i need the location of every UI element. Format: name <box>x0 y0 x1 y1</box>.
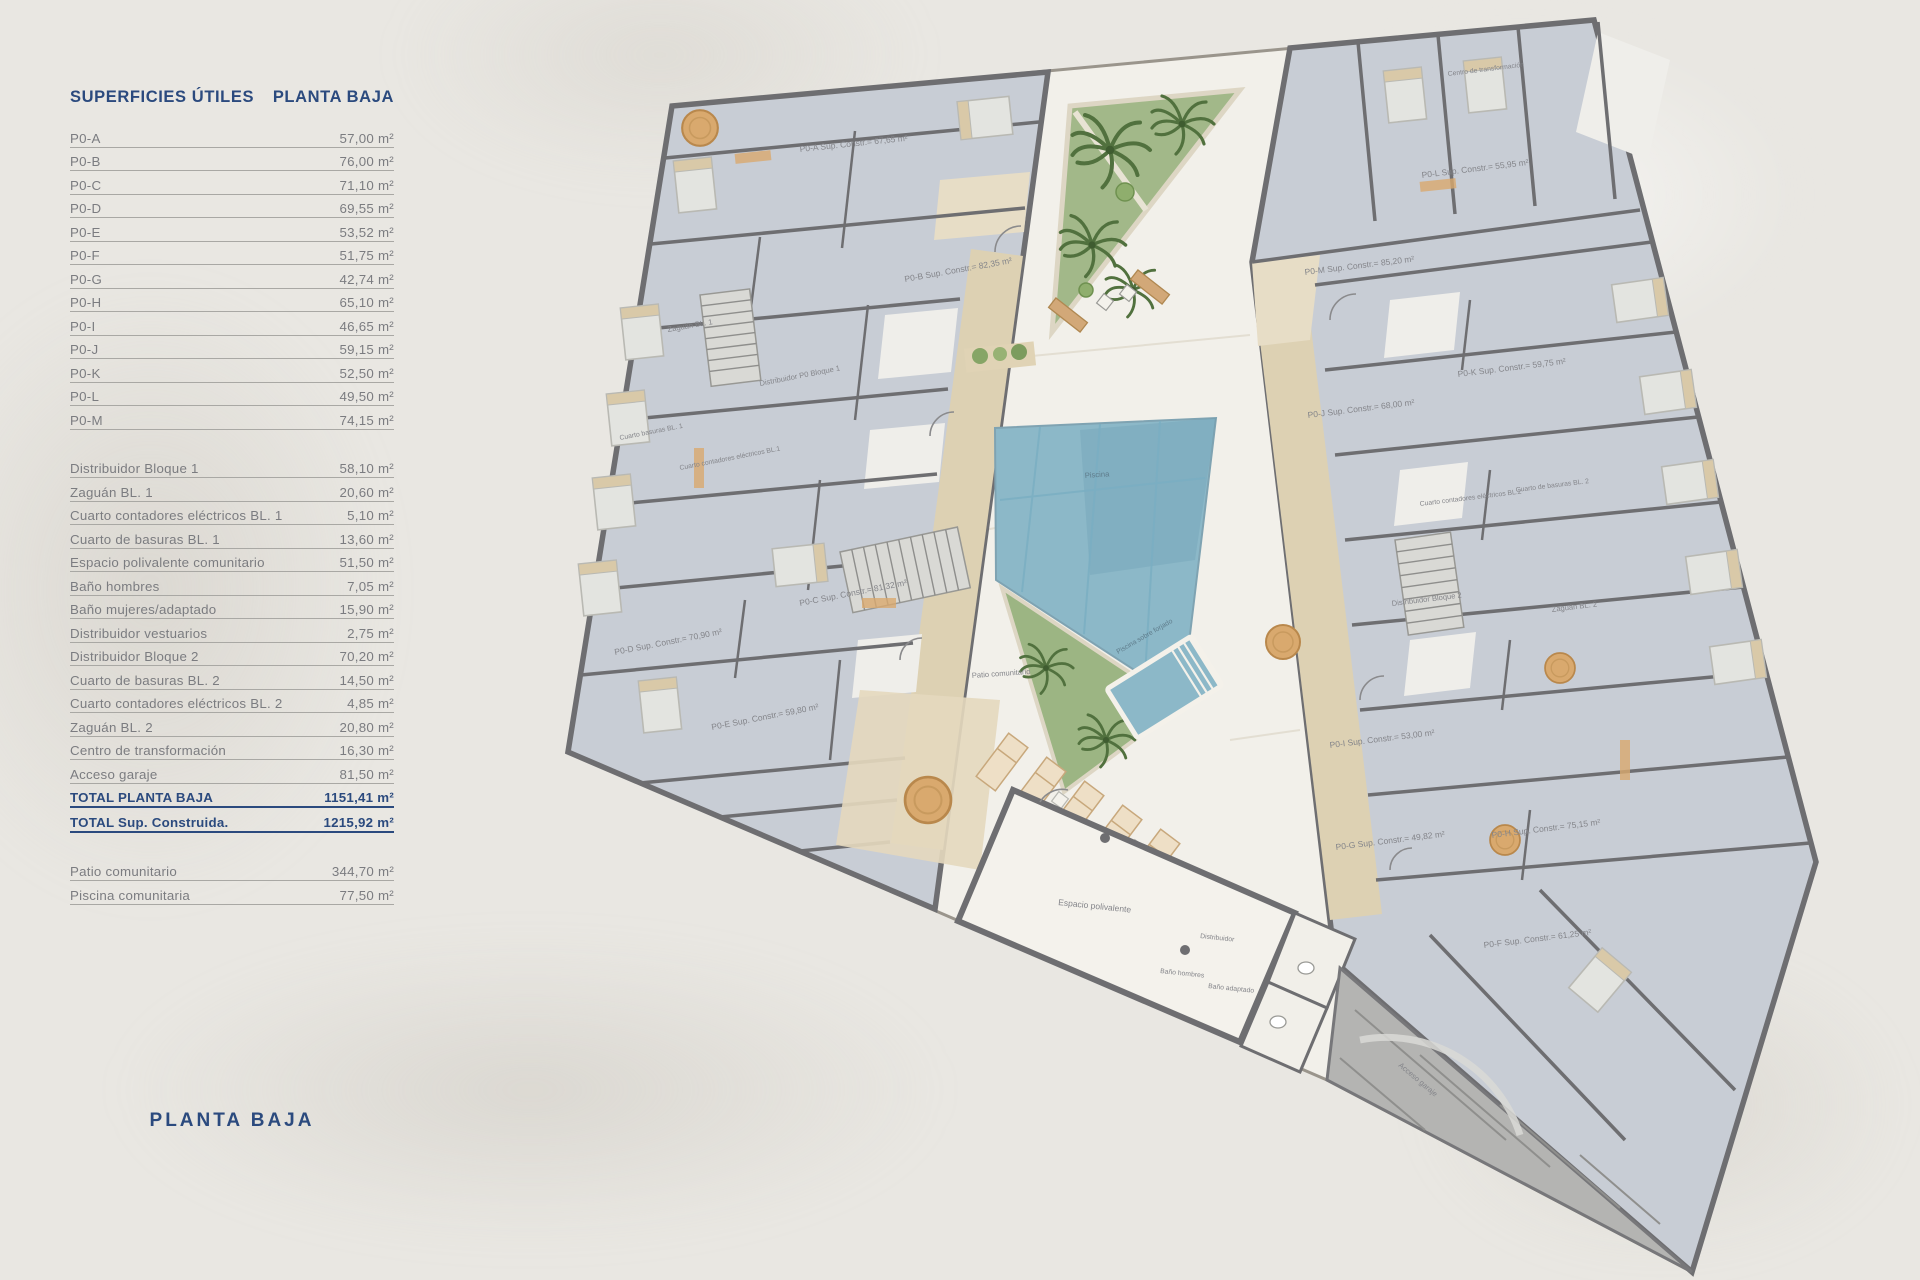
round-table <box>905 777 951 823</box>
round-table <box>1266 625 1300 659</box>
floor-plan: P0-A Sup. Constr.= 67,65 m² P0-B Sup. Co… <box>0 0 1920 1280</box>
plan-label-piscina: Piscina <box>1085 469 1111 480</box>
staircase <box>700 289 761 386</box>
patio-pavement <box>836 690 1000 870</box>
round-table <box>682 110 718 146</box>
round-table <box>1545 653 1575 683</box>
page: { "header": { "left": "SUPERFICIES ÚTILE… <box>0 0 1920 1280</box>
